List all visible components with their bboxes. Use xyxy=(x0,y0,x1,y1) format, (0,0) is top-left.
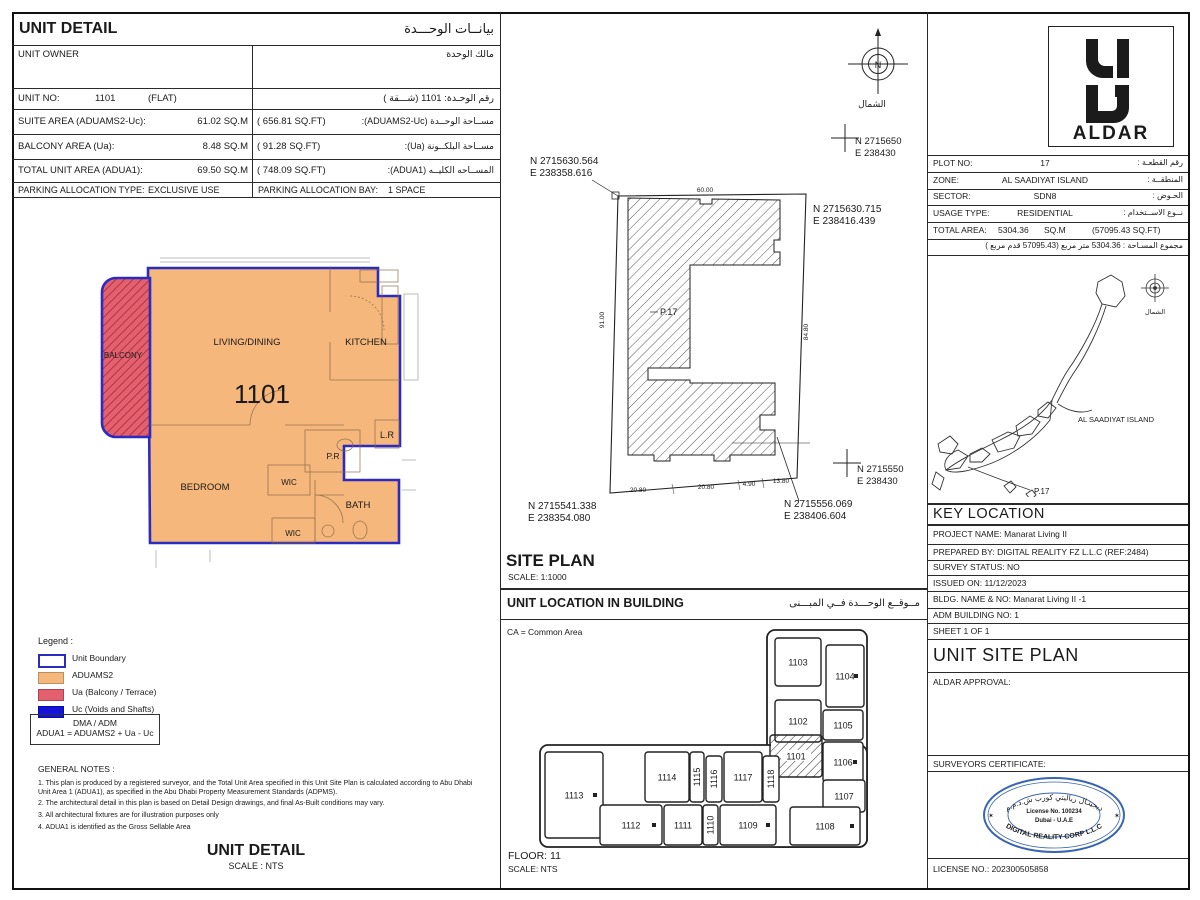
dma-line2: ADUA1 = ADUAMS2 + Ua - Uc xyxy=(31,728,159,738)
svg-text:DIGITAL REALITY CORP L.L.C: DIGITAL REALITY CORP L.L.C xyxy=(1004,823,1103,841)
suite-area-sqft: ( 656.81 SQ.FT) xyxy=(257,116,326,127)
unit-no-value: 1101 xyxy=(95,93,115,104)
building-scale-label: SCALE: NTS xyxy=(508,864,558,874)
legend-label: ADUAMS2 xyxy=(72,670,113,680)
usage-type-label: USAGE TYPE: xyxy=(933,208,990,218)
parking-bay-label: PARKING ALLOCATION BAY: xyxy=(258,185,378,195)
unit-site-plan-title: UNIT SITE PLAN xyxy=(933,645,1079,666)
legend-label: Ua (Balcony / Terrace) xyxy=(72,687,156,697)
coord-tr-n: N 2715630.715 xyxy=(813,204,882,215)
door-marker xyxy=(854,674,858,678)
building-unit-label: 1104 xyxy=(835,672,854,682)
grid-coord-top-n: N 2715650 xyxy=(855,136,901,147)
unit-owner-label: UNIT OWNER xyxy=(18,49,79,60)
building-unit-label: 1111 xyxy=(674,821,692,831)
building-unit-label: 1107 xyxy=(834,792,853,802)
sector-label: SECTOR: xyxy=(933,191,971,201)
stamp-star-left: ✶ xyxy=(988,812,994,820)
legend-title: Legend : xyxy=(38,636,73,646)
total-area-sqft-right: (57095.43 SQ.FT) xyxy=(1092,225,1161,235)
building-unit-label: 1116 xyxy=(709,770,719,789)
door-marker xyxy=(652,823,656,827)
aldar-logo-text: ALDAR xyxy=(1073,123,1150,144)
legend-swatch-unit-boundary xyxy=(38,654,66,668)
project-name-row: PROJECT NAME: Manarat Living II xyxy=(933,529,1067,539)
parking-type-value: EXCLUSIVE USE xyxy=(148,185,220,195)
compass-north-ar: الشمال xyxy=(858,99,886,109)
building-unit-label: 1113 xyxy=(565,791,584,801)
total-area-ar: المســاحه الكليــه (ADUA1): xyxy=(340,165,494,176)
stamp-city-line: Dubai - U.A.E xyxy=(1035,818,1073,824)
prepared-by-row: PREPARED BY: DIGITAL REALITY FZ L.L.C (R… xyxy=(933,547,1149,557)
room-label-lr: L.R xyxy=(380,430,395,440)
dim-bottom-3: 4.90 xyxy=(743,481,756,488)
dim-left: 91.00 xyxy=(599,311,606,328)
bldg-name-row: BLDG. NAME & NO: Manarat Living II -1 xyxy=(933,594,1086,604)
coord-br-e: E 238406.604 xyxy=(784,511,847,522)
total-area-label-right: TOTAL AREA: xyxy=(933,225,987,235)
dma-adm-box: DMA / ADM ADUA1 = ADUAMS2 + Ua - Uc xyxy=(30,714,160,745)
dim-bottom-1: 20.80 xyxy=(630,487,647,494)
total-area-unit-right: SQ.M xyxy=(1044,225,1066,235)
balcony-area-ar: مســاحة البلكــونة (Ua): xyxy=(340,141,494,152)
total-area-label: TOTAL UNIT AREA (ADUA1): xyxy=(18,165,143,176)
room-label-pr: P.R xyxy=(326,451,339,461)
room-label-wic-upper: WIC xyxy=(281,478,297,487)
sector-ar: الحـوض : xyxy=(1120,191,1183,200)
coord-bl-e: E 238354.080 xyxy=(528,513,591,524)
sheet-row: SHEET 1 OF 1 xyxy=(933,626,990,636)
aldar-logo: ALDAR xyxy=(1048,26,1174,147)
key-location-title: KEY LOCATION xyxy=(933,506,1045,522)
door-marker xyxy=(766,823,770,827)
building-unit-label: 1108 xyxy=(815,822,834,832)
building-unit-label: 1114 xyxy=(658,773,677,783)
building-unit-label: 1110 xyxy=(706,816,716,835)
coord-tl-n: N 2715630.564 xyxy=(530,156,599,167)
room-label-kitchen: KITCHEN xyxy=(345,337,387,348)
dim-top: 60.00 xyxy=(697,187,714,194)
unit-site-plan-document: UNIT DETAIL بيانــات الوحـــدة UNIT OWNE… xyxy=(0,0,1200,900)
legend-label: Uc (Voids and Shafts) xyxy=(72,704,154,714)
plot-number-label: P.17 xyxy=(660,307,677,317)
coord-bl-n: N 2715541.338 xyxy=(528,501,597,512)
building-unit-label: 1118 xyxy=(766,770,776,789)
door-marker xyxy=(853,760,857,764)
balcony-area-sqft: ( 91.28 SQ.FT) xyxy=(257,141,320,152)
building-unit-label: 1109 xyxy=(738,821,757,831)
usage-type-ar: نــوع الاســتخدام : xyxy=(1100,208,1183,217)
building-unit-label: 1106 xyxy=(833,758,852,768)
issued-on-row: ISSUED ON: 11/12/2023 xyxy=(933,578,1026,588)
general-notes-title: GENERAL NOTES : xyxy=(38,764,115,774)
room-label-balcony: BALCONY xyxy=(104,351,143,360)
suite-area-sqm: 61.02 SQ.M xyxy=(158,116,248,127)
survey-status-row: SURVEY STATUS: NO xyxy=(933,562,1020,572)
note-3: 3. All architectural fixtures are for il… xyxy=(38,812,219,819)
plot-no-label: PLOT NO: xyxy=(933,158,973,168)
total-area-sqft: ( 748.09 SQ.FT) xyxy=(257,165,326,176)
floor-plan-drawing: BALCONY LIVING/DINING KITCHEN 1101 P.R L… xyxy=(60,250,460,580)
total-area-value-right: 5304.36 xyxy=(998,225,1029,235)
stamp-company-name: DIGITAL REALITY CORP L.L.C xyxy=(1004,823,1103,841)
aldar-approval-label: ALDAR APPROVAL: xyxy=(933,677,1011,687)
total-area-sqm: 69.50 SQ.M xyxy=(158,165,248,176)
room-label-bath: BATH xyxy=(346,500,371,511)
usage-type-value: RESIDENTIAL xyxy=(990,208,1100,218)
balcony-area-label: BALCONY AREA (Ua): xyxy=(18,141,114,152)
building-unit-label: 1102 xyxy=(788,717,807,727)
compass-n-letter: N xyxy=(875,60,882,70)
balcony-area-sqm: 8.48 SQ.M xyxy=(158,141,248,152)
stamp-license-line: License No. 100234 xyxy=(1026,809,1082,815)
total-area-ar-right: مجموع المسـاحة : 5304.36 متر مربع (57095… xyxy=(935,241,1183,250)
parking-type-label: PARKING ALLOCATION TYPE: xyxy=(18,185,145,195)
grid-coord-bot-e: E 238430 xyxy=(857,476,898,487)
surveyor-stamp: ديجيتـال رياليتي كورب ش.ذ.م.م DIGITAL RE… xyxy=(978,774,1130,856)
adm-building-row: ADM BUILDING NO: 1 xyxy=(933,610,1019,620)
map-island-label: AL SAADIYAT ISLAND xyxy=(1078,415,1155,424)
door-marker xyxy=(850,824,854,828)
unit-detail-title: UNIT DETAIL xyxy=(19,20,117,38)
coord-tl-e: E 238358.616 xyxy=(530,168,593,179)
unit-owner-label-ar: مالك الوحدة xyxy=(330,49,494,60)
dma-line1: DMA / ADM xyxy=(31,718,159,728)
unit-location-title: UNIT LOCATION IN BUILDING xyxy=(507,596,684,610)
suite-area-ar: مســاحة الوحــدة (ADUAMS2-Uc): xyxy=(340,116,494,127)
room-label-bedroom: BEDROOM xyxy=(180,482,229,493)
unit-no-ar: رقم الوحـدة: 1101 (شـــقة ) xyxy=(300,93,494,104)
grid-coord-top-e: E 238430 xyxy=(855,148,896,159)
building-unit-label: 1115 xyxy=(692,768,702,787)
building-unit-label: 1117 xyxy=(734,773,753,783)
note-4: 4. ADUA1 is identified as the Gross Sell… xyxy=(38,824,191,831)
unit-detail-footer-title: UNIT DETAIL xyxy=(12,842,500,860)
site-plan-drawing: N الشمال N 2715650 E 238430 N 2715550 E … xyxy=(500,12,927,588)
door-marker xyxy=(593,793,597,797)
zone-ar: المنطقــة : xyxy=(1120,175,1183,184)
parking-bay-value: 1 SPACE xyxy=(388,185,425,195)
aldar-logo-glyph xyxy=(1086,39,1129,123)
sector-value: SDN8 xyxy=(990,191,1100,201)
legend-label: Unit Boundary xyxy=(72,653,126,663)
building-footprint xyxy=(628,198,780,461)
map-plot-label: P.17 xyxy=(1034,487,1050,496)
legend-swatch-ua xyxy=(38,689,64,701)
site-plan-scale: SCALE: 1:1000 xyxy=(508,572,567,582)
building-unit-label: 1112 xyxy=(622,821,641,831)
divider xyxy=(927,12,928,888)
floor-label: FLOOR: 11 xyxy=(508,850,561,862)
suite-area-label: SUITE AREA (ADUAMS2-Uc): xyxy=(18,116,146,127)
grid-coord-bot-n: N 2715550 xyxy=(857,464,903,475)
dim-bottom-2: 20.80 xyxy=(698,484,715,491)
unit-no-type: (FLAT) xyxy=(148,93,177,104)
map-north-ar: الشمال xyxy=(1145,309,1165,316)
dim-bottom-4: 13.80 xyxy=(773,478,790,485)
note-2: 2. The architectural detail in this plan… xyxy=(38,800,384,807)
coord-br-n: N 2715556.069 xyxy=(784,499,853,510)
plot-no-value: 17 xyxy=(990,158,1100,168)
zone-value: AL SAADIYAT ISLAND xyxy=(975,175,1115,185)
site-plan-title: SITE PLAN xyxy=(506,551,595,571)
unit-location-title-ar: مــوقــع الوحـــدة فــي المبـــنى xyxy=(700,598,920,609)
building-unit-label: 1105 xyxy=(833,721,852,731)
unit-number-label: 1101 xyxy=(234,379,290,409)
plot-no-ar: رقم القطعـة : xyxy=(1110,158,1183,167)
license-no-label: LICENSE NO.: 202300505858 xyxy=(933,864,1048,874)
note-1: 1. This plan is produced by a registered… xyxy=(38,779,480,798)
building-unit-label: 1103 xyxy=(788,658,807,668)
legend-swatch-aduams2 xyxy=(38,672,64,684)
room-label-living: LIVING/DINING xyxy=(213,337,280,348)
stamp-star-right: ✶ xyxy=(1114,812,1120,820)
unit-no-label: UNIT NO: xyxy=(18,93,60,104)
unit-detail-footer-scale: SCALE : NTS xyxy=(12,861,500,871)
building-unit-label: 1101 xyxy=(786,752,805,762)
map-compass-icon xyxy=(1141,274,1169,302)
surveyors-certificate-label: SURVEYORS CERTIFICATE: xyxy=(933,759,1046,769)
dim-right: 84.80 xyxy=(803,323,810,340)
coord-tr-e: E 238416.439 xyxy=(813,216,876,227)
room-label-wic-lower: WIC xyxy=(285,529,301,538)
zone-label: ZONE: xyxy=(933,175,959,185)
unit-detail-title-ar: بيانــات الوحـــدة xyxy=(330,21,494,37)
key-location-map: P.17 AL SAADIYAT ISLAND الشمال xyxy=(930,262,1186,497)
building-key-plan: 1103110411021105110111061107111311141115… xyxy=(535,622,927,848)
